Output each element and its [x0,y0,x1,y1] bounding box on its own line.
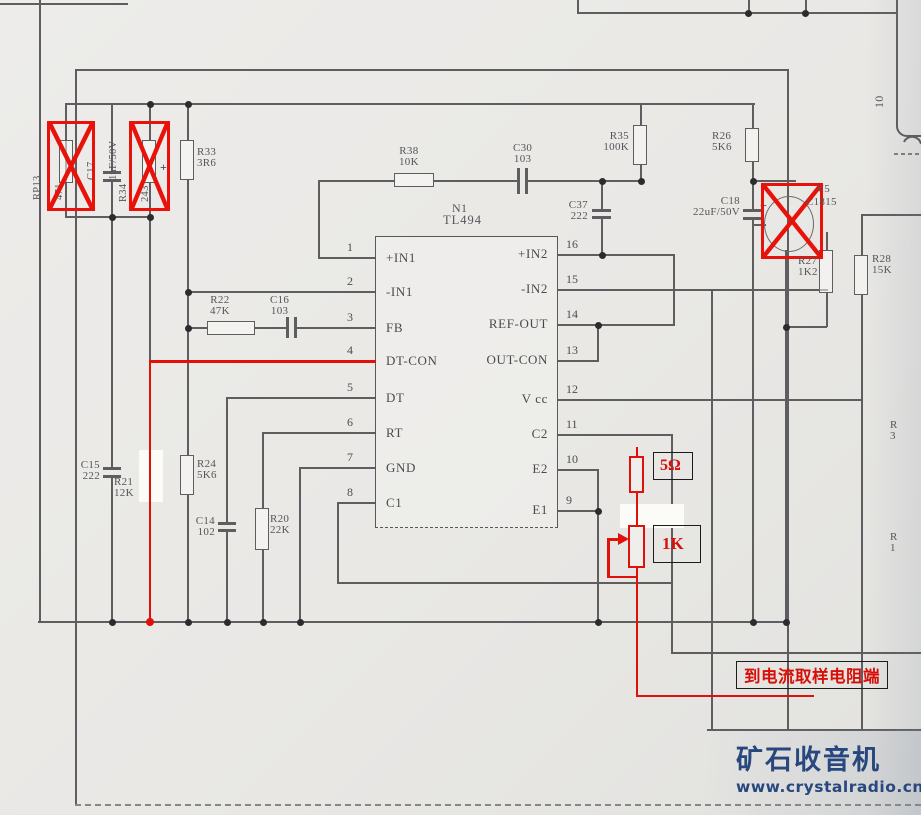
ic-pin-label: FB [386,320,403,336]
ic-pin-number: 14 [566,307,590,322]
label-c37: C37222 [558,200,588,222]
wire-segment [300,467,375,469]
label-c16: C16103 [270,295,289,317]
wire-segment [558,510,598,512]
ic-pin-label: -IN2 [430,281,548,297]
wire-segment [318,180,394,182]
wire-segment [558,469,599,471]
ic-pin-number: 6 [347,415,371,430]
label-r33: R333R6 [197,147,216,169]
label-r20: R2022K [270,514,290,536]
deleted-component-box-v5 [761,183,823,259]
wire-segment [262,432,264,508]
cap-plate [592,209,611,212]
ic-pin-number: 7 [347,450,371,465]
watermark: 矿石收音机 www.crystalradio.cn [736,746,921,798]
wire-segment [752,220,754,622]
wire-segment [434,180,518,182]
label-v5: V5 [816,184,830,195]
ic-pin-label: E2 [430,461,548,477]
junction-dot [224,619,231,626]
ic-pin-number: 9 [566,493,590,508]
wire-segment [785,326,827,328]
wire-segment [785,250,787,622]
wire-segment [558,360,599,362]
label-r38: R3810K [399,146,419,168]
wire-segment [0,3,128,5]
wire-segment [227,397,375,399]
resistor-symbol-r26 [745,128,759,162]
ic-pin-label: E1 [430,502,548,518]
wire-segment [263,432,375,434]
red-wire-segment [607,576,638,579]
wire-segment [752,103,754,128]
ic-pin-number: 15 [566,272,590,287]
cap-plate [517,168,520,194]
watermark-url: www.crystalradio.cn [736,776,921,798]
ic-pin-number: 8 [347,485,371,500]
wire-segment [66,103,755,105]
wire-segment [826,293,828,327]
wire-segment [75,69,789,71]
wire-segment [558,254,675,256]
deleted-component-box-rp13 [47,121,95,211]
red-wire-to-sense-resistor [636,695,814,698]
red-wire-segment [636,567,639,697]
wire-segment [671,652,921,654]
junction-dot [750,178,757,185]
red-junction-dot [146,618,154,626]
ic-pin-label: REF-OUT [430,316,548,332]
wire-segment [752,181,754,210]
wire-segment [640,103,642,125]
label-edge-partial: R3 [890,420,898,442]
wire-segment [528,180,641,182]
junction-dot [599,252,606,259]
junction-dot [638,178,645,185]
ic-pin-number: 10 [566,452,590,467]
ic-pin-number: 13 [566,343,590,358]
added-pot-symbol [628,525,645,568]
wire-segment [861,214,863,255]
label-c30: C30103 [513,143,532,165]
junction-dot [147,101,154,108]
annotation-box-5ohm: 5Ω [653,452,693,480]
wire-segment [318,180,320,258]
junction-dot [783,324,790,331]
junction-dot [599,178,606,185]
wire-segment [711,290,713,730]
wire-segment [299,467,301,622]
wire-segment [673,254,675,326]
ic-pin-label: RT [386,425,403,441]
watermark-logo-text: 矿石收音机 [736,746,921,776]
deleted-component-box-r34 [129,121,170,211]
cap-plate [286,317,289,338]
junction-dot [595,322,602,329]
junction-dot [595,508,602,515]
red-wire-pin4 [150,360,376,363]
label-r35: R35100K [599,131,629,153]
label-r24: R245K6 [197,459,217,481]
junction-dot [147,214,154,221]
red-wire-pin4-drop [149,360,152,622]
wire-segment [187,180,189,455]
wire-segment [297,327,375,329]
red-pot-wiper-arrowhead [618,533,629,545]
scanned-schematic-page: { "schematic": { "ic": { "designator": "… [0,0,921,815]
ic-pin-number: 16 [566,237,590,252]
added-resistor-symbol [629,456,644,493]
junction-dot [109,214,116,221]
wire-segment [558,399,862,401]
label-r27: R271K2 [798,256,818,278]
wire-segment [753,180,796,182]
ic-pin-label: GND [386,460,416,476]
resistor-symbol-r24 [180,455,194,495]
ic-pin-label: -IN1 [386,284,413,300]
ic-pin-label: DT [386,390,405,406]
wire-segment [597,325,599,361]
junction-dot [297,619,304,626]
ic-pin-number: 5 [347,380,371,395]
label-r28: R2815K [872,254,892,276]
wire-segment [597,469,599,512]
ic-pin-label: V cc [430,391,548,407]
ic-pin-label: +IN1 [386,250,416,266]
ic-pin-number: 12 [566,382,590,397]
ic-pin-number: 4 [347,343,371,358]
ic-pin-label: +IN2 [430,246,548,262]
cap-plate [218,522,236,525]
transformer-lead [896,0,898,122]
label-c14: C14102 [183,516,215,538]
resistor-symbol-r38 [394,173,434,187]
label-r26: R265K6 [712,131,732,153]
ic-part-number: TL494 [443,215,482,226]
wire-segment [337,582,673,584]
wire-segment [226,397,228,522]
resistor-symbol-r35 [633,125,647,165]
junction-dot [595,619,602,626]
wire-segment-dashed [75,804,921,806]
transformer-winding-icon [889,118,921,162]
junction-dot [185,619,192,626]
wire-segment [558,324,675,326]
junction-dot [109,619,116,626]
annotation-box-note: 到电流取样电阻端 [736,661,888,689]
wire-segment [149,217,151,363]
wire-segment [707,729,921,731]
junction-dot [802,10,809,17]
wire-segment [111,182,113,217]
wire-segment [597,511,599,622]
junction-dot [185,101,192,108]
cap-plate [103,467,121,470]
ic-pin-number: 3 [347,310,371,325]
junction-dot [783,619,790,626]
wire-segment [558,289,828,291]
wire-segment [338,502,375,504]
wire-segment [577,12,898,14]
junction-dot [750,619,757,626]
wire-segment [601,181,603,210]
resistor-symbol-r22 [207,321,255,335]
red-wire-segment [636,492,639,526]
resistor-symbol-r33 [180,140,194,180]
ic-pin-label: C2 [430,426,548,442]
wire-segment [337,502,339,583]
junction-dot [260,619,267,626]
label-c15: C15222 [68,460,100,482]
ic-tl494-body [375,236,558,528]
wire-segment [226,531,228,622]
wire-segment [577,0,579,12]
wire-segment [111,478,113,622]
junction-dot [185,289,192,296]
label-r21: R2112K [114,477,134,499]
wire-segment [601,219,603,255]
wire-segment [558,434,672,436]
resistor-symbol-r28 [854,255,868,295]
ic-pin-number: 1 [347,240,371,255]
ic-pin-number: 11 [566,417,590,432]
red-wire-segment [607,538,610,578]
ic-pin-number: 2 [347,274,371,289]
label-c18: C1822uF/50V [678,196,740,218]
ic-pin-label: C1 [386,495,402,511]
resistor-symbol-r20 [255,508,269,550]
wire-segment [187,291,375,293]
label-v5-part: C1815 [806,197,837,208]
junction-dot [745,10,752,17]
wire-segment [111,217,113,468]
wire-segment [826,232,828,250]
wire-segment [318,257,375,259]
annotation-box-1k: 1K [653,525,701,563]
label-r22: R2247K [210,295,230,317]
junction-dot [185,325,192,332]
wire-segment [861,214,921,216]
wire-segment [255,327,286,329]
label-transformer-pin-10: 10 [874,95,885,108]
label-edge-partial: R1 [890,532,898,554]
wire-segment [39,0,41,622]
wire-segment [187,495,189,622]
wire-segment [262,550,264,622]
wire-segment [187,103,189,140]
ic-pin-label: OUT-CON [430,352,548,368]
